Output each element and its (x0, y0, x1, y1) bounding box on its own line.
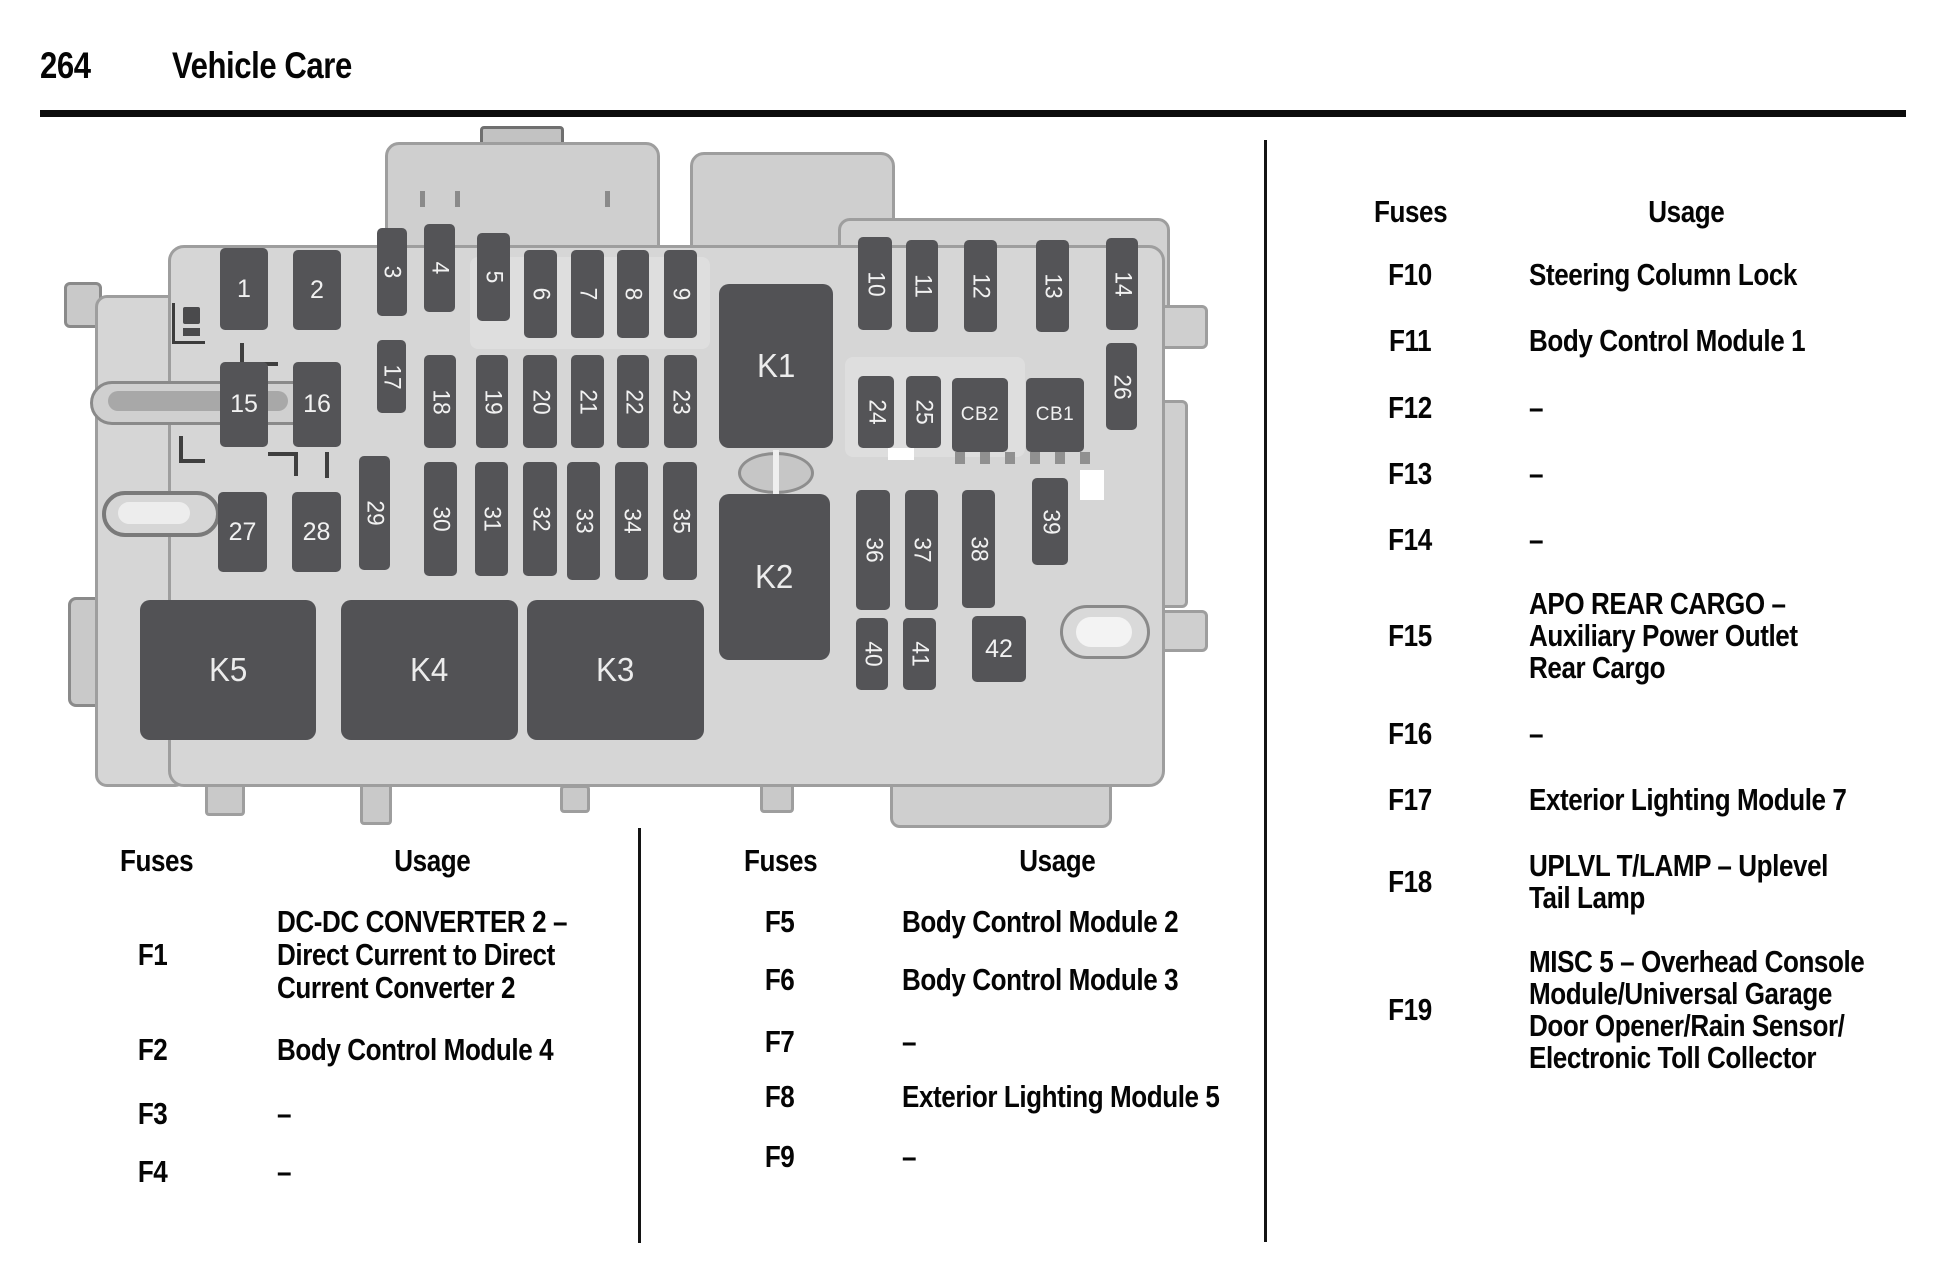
fuse-label: 22 (619, 389, 647, 414)
fuse-label: 24 (862, 399, 890, 424)
fuse-label: 31 (477, 506, 505, 531)
fuse-id-cell: F3 (95, 1096, 211, 1132)
fuse-id-cell: F15 (1352, 618, 1468, 654)
fuse-label: 9 (666, 288, 694, 301)
fuse-13: 13 (1036, 240, 1069, 332)
fuse-CB1: CB1 (1026, 378, 1084, 452)
fuse-id-cell: F5 (722, 904, 838, 940)
fuse-K3: K3 (527, 600, 704, 740)
fuse-id-cell: F16 (1352, 716, 1468, 752)
fuse-label: 41 (905, 641, 933, 666)
middle-table-usage-header: Usage (958, 843, 1156, 879)
usage-cell-line: Door Opener/Rain Sensor/ (1529, 1008, 1905, 1044)
usage-cell-line: – (1529, 390, 1546, 426)
fuse-id-cell: F12 (1352, 390, 1468, 426)
fuse-label: 6 (526, 288, 554, 301)
fuse-label: 37 (907, 537, 935, 562)
fuse-label: 1 (237, 275, 251, 304)
fuse-label: 42 (985, 635, 1013, 664)
fuse-id-cell: F14 (1352, 522, 1468, 558)
fuse-26: 26 (1106, 343, 1137, 430)
fuse-3: 3 (377, 228, 407, 316)
fuse-15: 15 (220, 362, 268, 447)
usage-cell-line: – (277, 1096, 294, 1132)
usage-cell-line: Module/Universal Garage (1529, 976, 1890, 1012)
fuse-id-cell: F6 (722, 962, 838, 998)
usage-cell-line: – (902, 1024, 919, 1060)
fuse-41: 41 (903, 618, 936, 690)
fuse-label: K4 (410, 651, 448, 689)
fuse-8: 8 (617, 250, 649, 338)
fuse-id-cell: F9 (722, 1139, 838, 1175)
fuse-label: 27 (229, 518, 257, 547)
page-title: Vehicle Care (172, 46, 386, 86)
fuse-id-cell: F17 (1352, 782, 1468, 818)
fuse-label: 39 (1036, 509, 1064, 534)
fuse-label: 20 (526, 389, 554, 414)
fuse-label: 2 (310, 276, 324, 305)
usage-cell-line: Auxiliary Power Outlet (1529, 618, 1849, 654)
fuse-39: 39 (1032, 478, 1068, 565)
fuse-id-cell: F13 (1352, 456, 1468, 492)
fuse-label: 34 (617, 508, 645, 533)
usage-cell-line: DC-DC CONVERTER 2 – (277, 904, 622, 940)
usage-cell-line: Body Control Module 1 (1529, 323, 1858, 359)
fuse-label: 33 (569, 508, 597, 533)
page-number: 264 (40, 46, 100, 86)
fuse-label: 7 (573, 288, 601, 301)
fuse-K4: K4 (341, 600, 518, 740)
fuse-K5: K5 (140, 600, 316, 740)
fuse-id-cell: F11 (1352, 323, 1468, 359)
fuse-label: 29 (360, 500, 388, 525)
right-table-usage-header: Usage (1588, 194, 1784, 230)
usage-cell-line: – (1529, 456, 1546, 492)
fuse-label: 36 (859, 537, 887, 562)
usage-cell-line: – (902, 1139, 919, 1175)
fuse-37: 37 (905, 490, 938, 610)
table-divider-right (1264, 140, 1267, 1242)
fuse-id-cell: F1 (95, 937, 211, 973)
fuse-label: 13 (1038, 273, 1066, 298)
fuse-K1: K1 (719, 284, 833, 448)
manual-page: 264 Vehicle Care (0, 0, 1946, 1288)
fuse-label: 30 (426, 506, 454, 531)
fuse-16: 16 (293, 362, 341, 447)
fuse-2: 2 (293, 250, 341, 330)
fuse-layer: 1234567891011121314151617181920212223242… (60, 115, 1270, 835)
fuse-label: 40 (858, 641, 886, 666)
fuse-label: 25 (909, 399, 937, 424)
fuse-25: 25 (906, 376, 941, 448)
fuse-4: 4 (424, 224, 455, 312)
fuse-label: 15 (230, 390, 258, 419)
fuse-36: 36 (856, 490, 890, 610)
fuse-42: 42 (972, 616, 1026, 682)
usage-cell-line: – (1529, 716, 1546, 752)
fuse-18: 18 (424, 355, 456, 448)
usage-cell-line: Body Control Module 4 (277, 1032, 606, 1068)
fuse-10: 10 (858, 237, 892, 330)
usage-cell-line: UPLVL T/LAMP – Uplevel (1529, 848, 1885, 884)
fuse-label: 8 (619, 288, 647, 301)
fuse-label: 32 (526, 506, 554, 531)
fuse-id-cell: F18 (1352, 864, 1468, 900)
fuse-19: 19 (476, 355, 508, 448)
fuse-id-cell: F10 (1352, 257, 1468, 293)
fuse-label: 23 (666, 389, 694, 414)
fuse-id-cell: F4 (95, 1154, 211, 1190)
fuse-label: 16 (303, 390, 331, 419)
fuse-30: 30 (424, 462, 457, 576)
fuse-33: 33 (567, 462, 600, 580)
left-table-fuses-header: Fuses (62, 843, 252, 879)
fuse-31: 31 (475, 462, 508, 576)
fuse-label: 4 (425, 262, 453, 275)
fuse-K2: K2 (719, 494, 830, 660)
fuse-38: 38 (962, 490, 995, 608)
fuse-label: 12 (966, 273, 994, 298)
fuse-14: 14 (1106, 238, 1138, 330)
fuse-label: 11 (908, 274, 936, 298)
usage-cell-line: – (277, 1154, 294, 1190)
usage-cell-line: Tail Lamp (1529, 880, 1667, 916)
fuse-6: 6 (524, 250, 557, 338)
fuse-label: 18 (426, 389, 454, 414)
fuse-id-cell: F8 (722, 1079, 838, 1115)
fuse-id-cell: F19 (1352, 992, 1468, 1028)
fuse-5: 5 (477, 233, 510, 321)
fuse-label: 5 (479, 271, 507, 284)
fuse-40: 40 (856, 618, 888, 690)
fuse-32: 32 (523, 462, 557, 576)
usage-cell-line: Body Control Module 2 (902, 904, 1231, 940)
fuse-label: CB1 (1036, 404, 1074, 426)
fuse-label: 3 (378, 266, 406, 279)
fuse-label: 10 (861, 271, 889, 296)
fuse-22: 22 (617, 355, 649, 448)
right-table-fuses-header: Fuses (1330, 194, 1492, 230)
usage-cell-line: APO REAR CARGO – (1529, 586, 1834, 622)
usage-cell-line: Rear Cargo (1529, 650, 1691, 686)
fuse-box-diagram: 1234567891011121314151617181920212223242… (60, 115, 1270, 835)
fuse-label: 26 (1107, 374, 1135, 399)
fuse-34: 34 (615, 462, 648, 580)
fuse-id-cell: F2 (95, 1032, 211, 1068)
left-table-usage-header: Usage (330, 843, 535, 879)
fuse-label: 19 (478, 389, 506, 414)
fuse-23: 23 (664, 355, 697, 448)
fuse-label: 38 (964, 536, 992, 561)
fuse-29: 29 (359, 456, 390, 570)
usage-cell-line: Steering Column Lock (1529, 257, 1848, 293)
fuse-label: K3 (596, 651, 634, 689)
usage-cell-line: Electronic Toll Collector (1529, 1040, 1871, 1076)
fuse-label: CB2 (961, 404, 999, 426)
usage-cell-line: Exterior Lighting Module 7 (1529, 782, 1907, 818)
fuse-27: 27 (218, 492, 267, 572)
fuse-7: 7 (571, 250, 604, 338)
usage-cell-line: Current Converter 2 (277, 970, 560, 1006)
fuse-label: 35 (666, 508, 694, 533)
fuse-35: 35 (663, 462, 697, 580)
fuse-17: 17 (377, 340, 406, 413)
usage-cell-line: – (1529, 522, 1546, 558)
usage-cell-line: Exterior Lighting Module 5 (902, 1079, 1280, 1115)
fuse-label: K5 (209, 651, 247, 689)
usage-cell-line: Direct Current to Direct (277, 937, 608, 973)
fuse-label: 17 (377, 364, 405, 389)
fuse-24: 24 (858, 376, 894, 448)
middle-table-fuses-header: Fuses (700, 843, 862, 879)
fuse-11: 11 (906, 240, 938, 332)
fuse-9: 9 (664, 250, 697, 338)
fuse-CB2: CB2 (952, 378, 1008, 452)
fuse-12: 12 (964, 240, 997, 332)
table-divider-left (638, 828, 641, 1243)
fuse-id-cell: F7 (722, 1024, 838, 1060)
fuse-label: 14 (1108, 271, 1136, 296)
fuse-20: 20 (523, 355, 557, 448)
fuse-1: 1 (220, 248, 268, 330)
usage-cell-line: MISC 5 – Overhead Console (1529, 944, 1928, 980)
fuse-label: 21 (573, 389, 601, 414)
fuse-label: K1 (757, 347, 795, 385)
fuse-28: 28 (292, 492, 341, 572)
fuse-21: 21 (571, 355, 604, 448)
fuse-label: K2 (755, 558, 793, 596)
fuse-label: 28 (303, 518, 331, 547)
usage-cell-line: Body Control Module 3 (902, 962, 1231, 998)
